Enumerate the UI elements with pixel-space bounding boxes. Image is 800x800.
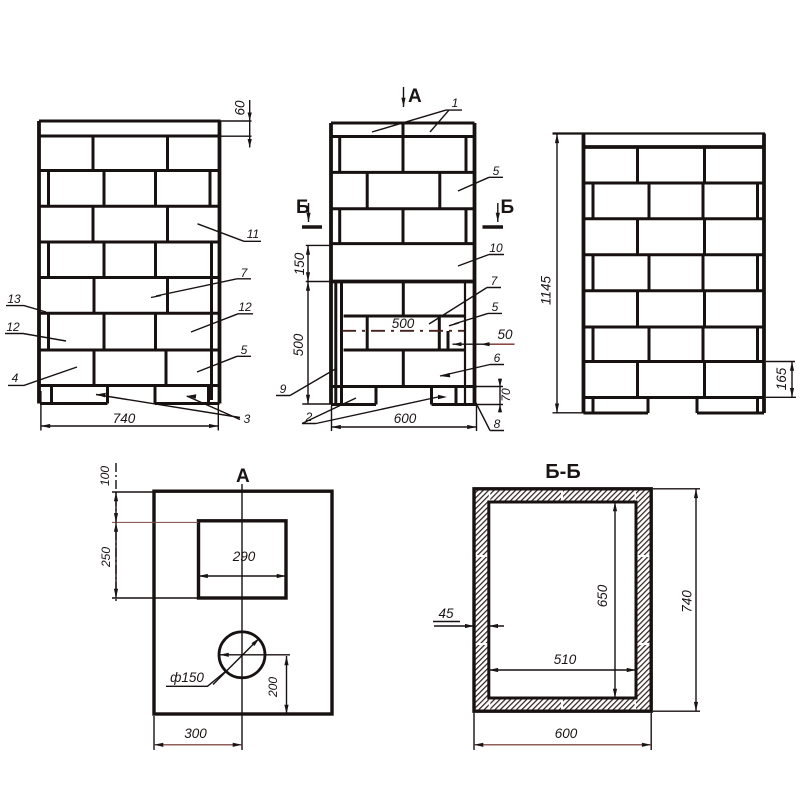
svg-text:4: 4 [12,371,19,385]
svg-text:А: А [408,86,422,107]
svg-text:740: 740 [680,590,695,613]
svg-text:200: 200 [266,677,280,698]
svg-text:600: 600 [555,726,578,741]
svg-text:300: 300 [184,726,207,741]
svg-text:50: 50 [497,327,513,342]
svg-text:9: 9 [280,382,287,396]
svg-text:1: 1 [452,96,459,110]
svg-text:165: 165 [774,367,789,390]
svg-text:290: 290 [232,549,256,564]
svg-text:60: 60 [233,100,248,116]
svg-text:3: 3 [244,412,251,426]
svg-text:5: 5 [241,343,248,357]
svg-text:500: 500 [392,316,415,331]
svg-text:510: 510 [554,652,577,667]
svg-text:А: А [236,466,250,487]
svg-text:45: 45 [438,606,454,621]
svg-text:500: 500 [291,333,306,356]
svg-text:100: 100 [98,466,112,486]
svg-text:13: 13 [7,292,21,306]
svg-text:10: 10 [489,241,503,255]
svg-text:6: 6 [494,351,501,365]
svg-text:650: 650 [595,584,610,607]
svg-text:600: 600 [394,411,417,426]
svg-text:12: 12 [6,320,20,334]
svg-text:1145: 1145 [539,275,554,305]
svg-text:740: 740 [113,411,136,426]
svg-text:Б: Б [501,197,515,218]
svg-text:Б-Б: Б-Б [545,461,580,483]
svg-text:11: 11 [247,227,259,241]
svg-text:150: 150 [292,252,307,275]
svg-text:12: 12 [238,300,252,314]
svg-text:250: 250 [99,547,113,568]
svg-text:5: 5 [493,164,500,178]
svg-text:5: 5 [492,300,499,314]
svg-text:Б: Б [296,197,310,218]
svg-text:ф150: ф150 [170,670,204,685]
svg-text:70: 70 [499,388,513,402]
svg-text:8: 8 [494,417,501,431]
